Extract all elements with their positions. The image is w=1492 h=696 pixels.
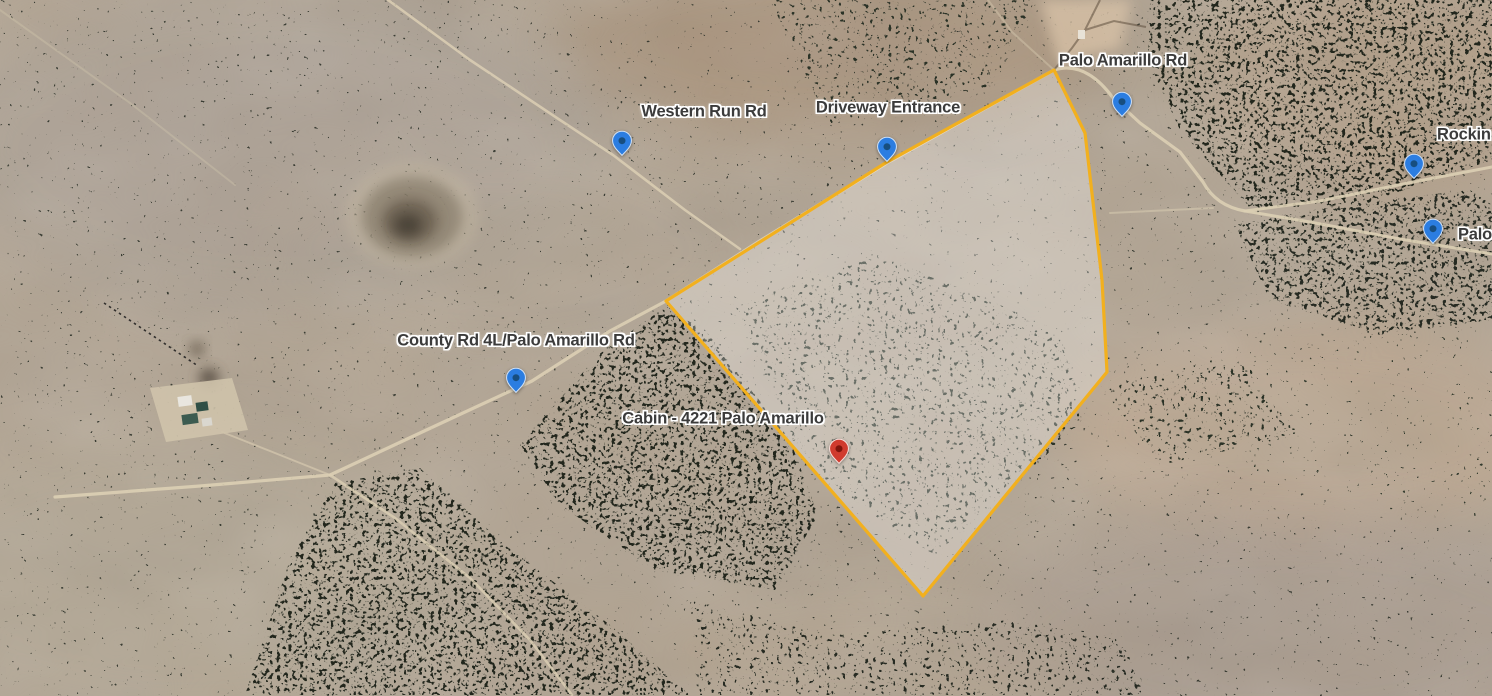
pin-western-run-rd[interactable] <box>612 130 633 157</box>
pin-dot <box>1430 225 1437 232</box>
pin-dot <box>1119 98 1126 105</box>
satellite-imagery <box>0 0 1492 696</box>
map-canvas[interactable]: Palo Amarillo Rd Western Run Rd Driveway… <box>0 0 1492 696</box>
pin-rockin-l[interactable] <box>1404 153 1425 180</box>
pin-driveway-entrance[interactable] <box>877 136 898 163</box>
dark-spot <box>190 342 204 356</box>
pin-cabin[interactable] <box>829 438 850 465</box>
pin-county-rd-4l[interactable] <box>506 367 527 394</box>
pin-palo[interactable] <box>1423 218 1444 245</box>
pin-palo-amarillo-rd[interactable] <box>1112 91 1133 118</box>
pin-dot <box>836 445 843 452</box>
pin-dot <box>513 374 520 381</box>
stock-pond <box>346 163 478 267</box>
pin-dot <box>1411 160 1418 167</box>
pin-dot <box>619 137 626 144</box>
pin-dot <box>884 143 891 150</box>
